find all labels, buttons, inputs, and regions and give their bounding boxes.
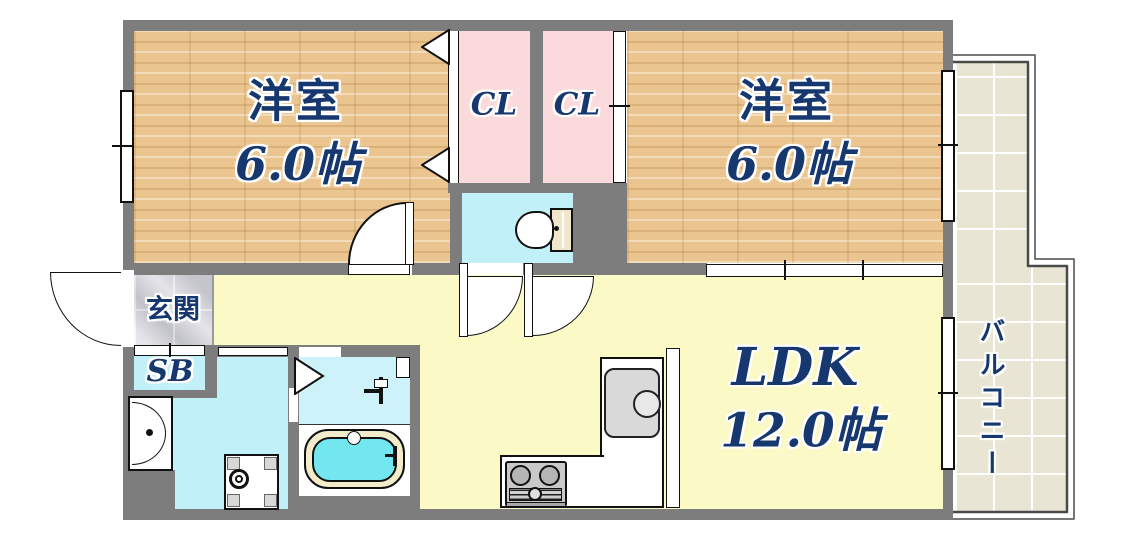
toilet-bowl-icon — [515, 211, 554, 249]
entrance-door-leaf — [121, 270, 134, 347]
kitchen-counter-joint — [602, 457, 662, 506]
entrance-label: 玄関 — [146, 297, 200, 324]
bath-counter — [396, 357, 410, 378]
toilet-tank-knob — [554, 226, 559, 231]
washer-pan-corner-3 — [227, 494, 240, 507]
shower-bar — [364, 389, 381, 393]
toilet-door-leaf — [459, 263, 468, 337]
bedroom2-window — [941, 70, 955, 222]
closet2-label: CL — [554, 90, 600, 121]
bedroom1-window-tick — [112, 145, 134, 147]
sliding-window-tick-1 — [784, 260, 786, 280]
wall-bath-right — [410, 345, 420, 520]
bedroom2-sliding-window — [706, 264, 943, 277]
washroom-sliding-door — [218, 347, 288, 356]
toilet-door-opening — [462, 264, 523, 275]
wall-hall-top-a — [123, 263, 348, 275]
closet1-door-triangle-bottom — [421, 147, 450, 183]
shoebox-label: SB — [146, 357, 193, 387]
closet1-door-triangle-top — [421, 29, 450, 65]
toilet-tank-slit — [562, 212, 564, 248]
balcony-label: バルコニー — [977, 318, 1003, 483]
bedroom2-window-tick — [938, 144, 958, 146]
wall-washroom-corner-block — [123, 470, 175, 520]
closet2-door-strip — [613, 31, 626, 183]
floorplan: 洋室 6.0帖 洋室 6.0帖 CL CL 玄関 SB LDK 12.0帖 バル… — [0, 0, 1122, 542]
ldk-size-label: 12.0帖 — [720, 408, 881, 455]
bathroom-fold-door — [294, 357, 325, 395]
stove-front-bar — [506, 502, 566, 507]
shower-head — [374, 379, 388, 388]
washer-pan-corner-4 — [264, 494, 277, 507]
sliding-window-tick-2 — [862, 260, 864, 280]
bedroom2-size-label: 6.0帖 — [726, 141, 852, 187]
bedroom1-door-threshold — [348, 264, 410, 275]
balcony-floor-upper — [955, 62, 1028, 268]
stove-knob — [528, 487, 542, 501]
bedroom2-name-label: 洋室 — [739, 79, 835, 124]
balcony-floor-lower — [955, 266, 1067, 513]
bathroom-door-opening — [299, 347, 341, 357]
entrance-door-arc — [50, 272, 121, 346]
wall-toilet-left — [450, 183, 462, 263]
bedroom1-name-label: 洋室 — [248, 79, 344, 124]
closet1-label: CL — [471, 90, 517, 121]
washer-drain-inner — [235, 475, 243, 483]
wall-bottom — [123, 509, 953, 520]
bathtub-drain — [347, 431, 361, 445]
bedroom1-door-leaf — [405, 202, 414, 265]
ldk-window-tick — [938, 392, 958, 394]
kitchen-side-strip — [666, 348, 680, 508]
ldk-name-label: LDK — [732, 342, 859, 394]
wall-between-closets — [530, 31, 543, 183]
washer-pan-corner-2 — [264, 457, 277, 470]
stove-burner-left — [510, 465, 531, 486]
kitchen-sink-bowl — [633, 390, 661, 418]
stove-icon — [505, 461, 567, 507]
wall-hall-top-c — [523, 263, 707, 275]
wall-hall-top-b — [412, 263, 462, 275]
wall-toilet-right-block — [573, 183, 627, 275]
bathtub-faucet-spout — [385, 454, 394, 457]
wall-bath-bottom — [299, 495, 410, 520]
washbasin-faucet-dot — [146, 429, 153, 436]
stove-burner-right — [539, 465, 560, 486]
closet2-door-tick — [609, 105, 630, 107]
ldk-door-leaf — [524, 263, 533, 337]
wall-top — [123, 20, 953, 31]
bedroom1-size-label: 6.0帖 — [235, 141, 361, 187]
